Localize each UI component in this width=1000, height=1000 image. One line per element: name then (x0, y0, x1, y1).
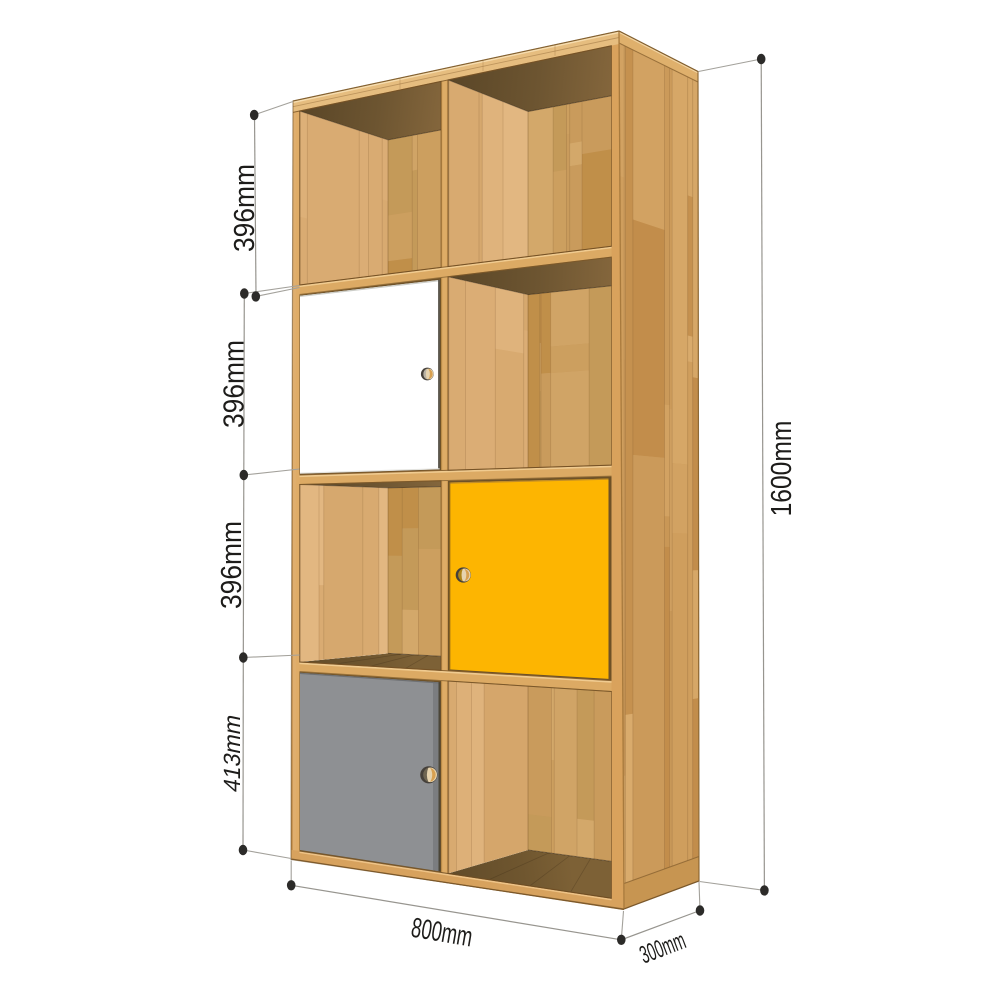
svg-text:396mm: 396mm (217, 340, 249, 428)
svg-text:396mm: 396mm (228, 164, 260, 252)
svg-text:396mm: 396mm (215, 521, 247, 609)
svg-text:1600mm: 1600mm (765, 421, 797, 517)
svg-text:413mm: 413mm (219, 712, 245, 794)
